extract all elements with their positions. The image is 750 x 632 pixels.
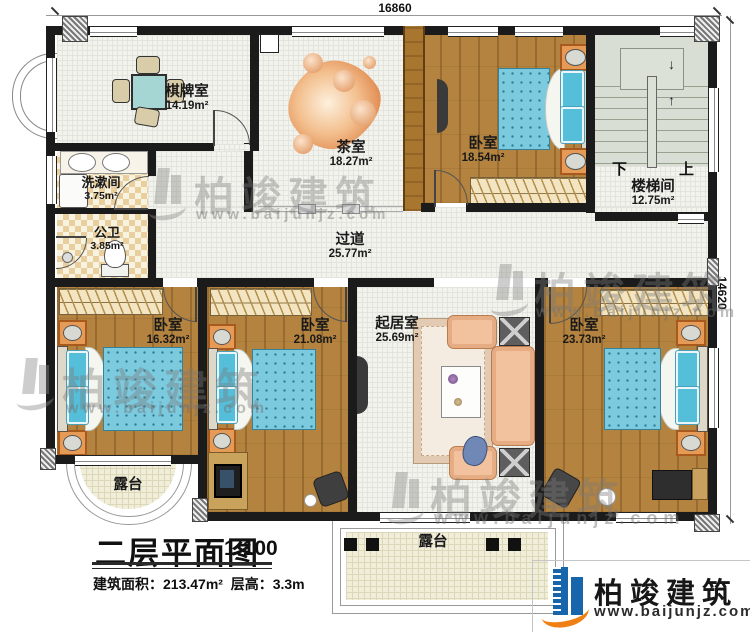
room-label-stair: 楼梯间 12.75m² <box>631 179 675 208</box>
window-top-chess <box>90 26 137 37</box>
wall-corridor-bottom-b <box>197 278 314 287</box>
plan-scale: 1:100 <box>224 537 278 561</box>
watermark-logo-icon <box>490 264 530 316</box>
watermark-url: www.baijunjz.com <box>434 508 685 529</box>
room-label-terrace-bottom: 露台 <box>419 534 448 550</box>
pillow <box>561 71 584 109</box>
watermark-logo-icon <box>148 168 188 220</box>
floor-plan-canvas: 16860 14620 <box>0 0 750 632</box>
bay-window-glazing <box>46 58 57 132</box>
window-left-washroom <box>46 156 57 204</box>
dresser <box>692 468 708 500</box>
sofa <box>491 346 535 446</box>
window-top-tea <box>292 26 384 37</box>
tv-panel <box>437 79 448 133</box>
dimension-line-right <box>730 16 731 524</box>
tea-decor-dot <box>350 100 376 126</box>
flower-decor <box>448 374 458 384</box>
room-name: 洗漱间 <box>81 176 120 191</box>
company-url: www.baijunjz.com <box>594 603 750 620</box>
room-name: 茶室 <box>330 140 373 156</box>
sink <box>68 153 96 172</box>
area-label: 建筑面积： <box>93 576 163 592</box>
stair-down-label: 下 <box>612 158 627 179</box>
end-table <box>499 317 530 346</box>
room-label-tea: 茶室 18.27m² <box>330 140 373 169</box>
room-area: 25.77m² <box>329 248 372 261</box>
corner-pilaster <box>694 514 720 532</box>
pillow <box>561 107 584 143</box>
dimension-width-label: 16860 <box>360 1 430 15</box>
window-top-bedroom-b <box>515 26 563 37</box>
chair <box>136 56 160 74</box>
wall-bedroom-top-bottom-a <box>421 203 435 212</box>
dimension-tick <box>713 7 721 15</box>
window-bedroom-left-terrace <box>75 455 171 466</box>
window-top-bedroom-a <box>448 26 498 37</box>
nightstand <box>58 320 87 346</box>
stair-bottom-window <box>678 213 704 224</box>
room-area: 25.69m² <box>375 332 419 345</box>
bed-mattress <box>604 348 661 430</box>
logo-swoosh <box>539 594 592 631</box>
stair-arrow-down-icon: ↓ <box>668 56 675 72</box>
nightstand <box>676 430 706 456</box>
room-name: 露台 <box>114 477 143 493</box>
corner-pilaster <box>694 16 720 42</box>
logo-frame-line <box>532 560 533 632</box>
chess-door-opening <box>214 144 250 151</box>
bedroom-left-door-leaf <box>195 287 197 322</box>
wardrobe <box>59 288 163 315</box>
tv-cabinet <box>652 470 692 500</box>
room-area: 23.73m² <box>563 334 606 347</box>
plan-subtitle: 建筑面积：213.47m² 层高：3.3m <box>93 574 305 594</box>
tea-decor-dot <box>293 134 313 154</box>
chair <box>112 79 130 103</box>
sink <box>102 153 130 172</box>
room-label-terrace-left: 露台 <box>114 477 143 493</box>
window-right-bedroom <box>708 348 719 428</box>
room-name: 起居室 <box>375 316 419 332</box>
room-area: 18.27m² <box>330 156 373 169</box>
wall-stair-left <box>586 26 595 213</box>
room-area: 18.54m² <box>462 152 505 165</box>
wall-corridor-bottom-c <box>348 278 434 287</box>
dimension-line-top <box>46 15 722 16</box>
room-area: 3.75m² <box>81 191 120 203</box>
corner-pilaster <box>192 498 208 522</box>
room-name: 过道 <box>329 232 372 248</box>
room-label-bedroom-top: 卧室 18.54m² <box>462 136 505 165</box>
tea-decor-dot <box>303 53 323 73</box>
wall-chess-bottom <box>46 143 214 151</box>
dimension-tick <box>51 7 59 15</box>
monitor-screen <box>220 470 234 488</box>
corner-pilaster <box>62 16 88 42</box>
room-label-toilet: 公卫 3.85m² <box>90 226 123 252</box>
height-label: 层高： <box>231 576 273 592</box>
terrace-column <box>366 538 379 551</box>
nightstand <box>58 430 87 456</box>
flue-vent-symbol <box>260 34 279 53</box>
wardrobe <box>210 288 312 316</box>
watermark-logo-icon <box>386 472 426 524</box>
floor-lamp <box>304 494 317 507</box>
terrace-column <box>508 538 521 551</box>
room-name: 卧室 <box>147 318 190 334</box>
room-label-bedroom-left: 卧室 16.32m² <box>147 318 190 347</box>
terrace-column <box>486 538 499 551</box>
tea-decor-dot <box>333 70 355 92</box>
chair <box>134 106 161 128</box>
area-value: 213.47m² <box>163 576 223 592</box>
nightstand <box>208 324 236 350</box>
wall-tea-bedroom <box>403 26 425 211</box>
stair-arrow-up-icon: ↑ <box>668 92 675 108</box>
armchair <box>447 315 497 349</box>
room-area: 21.08m² <box>294 334 337 347</box>
room-area: 14.19m² <box>165 100 209 113</box>
title-underline <box>92 562 272 569</box>
watermark-logo-icon <box>16 358 56 410</box>
dish-decor <box>454 398 462 406</box>
corner-pilaster <box>40 448 56 470</box>
room-name: 公卫 <box>90 226 123 241</box>
room-name: 卧室 <box>294 318 337 334</box>
bedroom-mid-door-leaf <box>345 287 347 322</box>
room-label-corridor: 过道 25.77m² <box>329 232 372 261</box>
wall-bedroom-top-bottom-b <box>466 203 592 212</box>
logo-frame-line <box>532 560 750 561</box>
room-label-wash: 洗漱间 3.75m² <box>81 176 120 202</box>
pillow <box>676 351 699 389</box>
watermark-url: www.baijunjz.com <box>66 400 268 418</box>
room-name: 棋牌室 <box>165 84 209 100</box>
room-label-bedroom-mid: 卧室 21.08m² <box>294 318 337 347</box>
mahjong-table <box>131 74 167 110</box>
room-label-bedroom-right: 卧室 23.73m² <box>563 318 606 347</box>
pillow <box>676 387 699 424</box>
window-right-stair <box>708 88 719 172</box>
room-area: 16.32m² <box>147 334 190 347</box>
coffee-table <box>441 366 481 418</box>
room-name: 露台 <box>419 534 448 550</box>
nightstand <box>676 320 706 346</box>
bed-mattress <box>498 68 550 150</box>
height-value: 3.3m <box>273 576 305 592</box>
room-area: 3.85m² <box>90 241 123 253</box>
terrace-column <box>344 538 357 551</box>
room-name: 卧室 <box>462 136 505 152</box>
nightstand <box>208 428 236 454</box>
wall-corridor-bottom-a <box>46 278 163 287</box>
wall-chess-tea <box>250 26 259 151</box>
watermark-url: www.baijunjz.com <box>196 206 389 223</box>
room-label-chess: 棋牌室 14.19m² <box>165 84 209 113</box>
room-area: 12.75m² <box>631 195 675 208</box>
stair-up-label: 上 <box>679 158 694 179</box>
tea-decor-dot <box>363 56 376 69</box>
room-name: 卧室 <box>563 318 606 334</box>
room-label-living: 起居室 25.69m² <box>375 316 419 345</box>
company-logo-icon <box>543 565 589 625</box>
tv-panel <box>357 356 368 414</box>
room-name: 楼梯间 <box>631 179 675 195</box>
stair-rail <box>647 76 657 168</box>
wall-bedroom-mid-living <box>348 287 357 521</box>
